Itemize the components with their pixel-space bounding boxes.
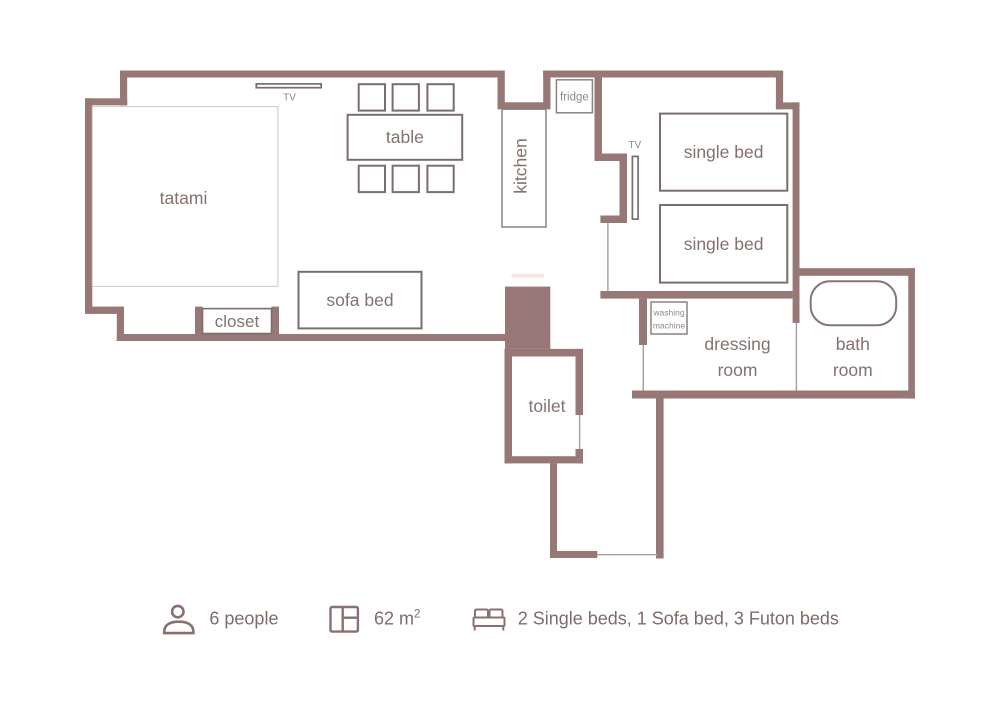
svg-text:single bed: single bed (684, 142, 764, 162)
svg-text:dressing: dressing (704, 334, 770, 354)
svg-text:washing: washing (652, 308, 684, 318)
svg-text:62 m2: 62 m2 (374, 609, 420, 629)
svg-text:fridge: fridge (560, 92, 589, 104)
svg-text:2 Single beds, 1 Sofa bed, 3 F: 2 Single beds, 1 Sofa bed, 3 Futon beds (518, 609, 839, 629)
svg-text:TV: TV (283, 93, 296, 104)
svg-text:machine: machine (653, 321, 685, 331)
svg-text:sofa bed: sofa bed (326, 290, 393, 310)
svg-text:room: room (718, 360, 758, 380)
svg-text:room: room (833, 360, 873, 380)
svg-text:6 people: 6 people (209, 609, 278, 629)
svg-text:TV: TV (628, 140, 641, 151)
svg-text:kitchen: kitchen (511, 138, 531, 193)
svg-text:bath: bath (836, 334, 870, 354)
svg-text:tatami: tatami (160, 188, 208, 208)
svg-text:single bed: single bed (684, 234, 764, 254)
svg-text:closet: closet (215, 312, 260, 331)
svg-text:toilet: toilet (529, 396, 566, 416)
svg-text:table: table (386, 127, 424, 147)
